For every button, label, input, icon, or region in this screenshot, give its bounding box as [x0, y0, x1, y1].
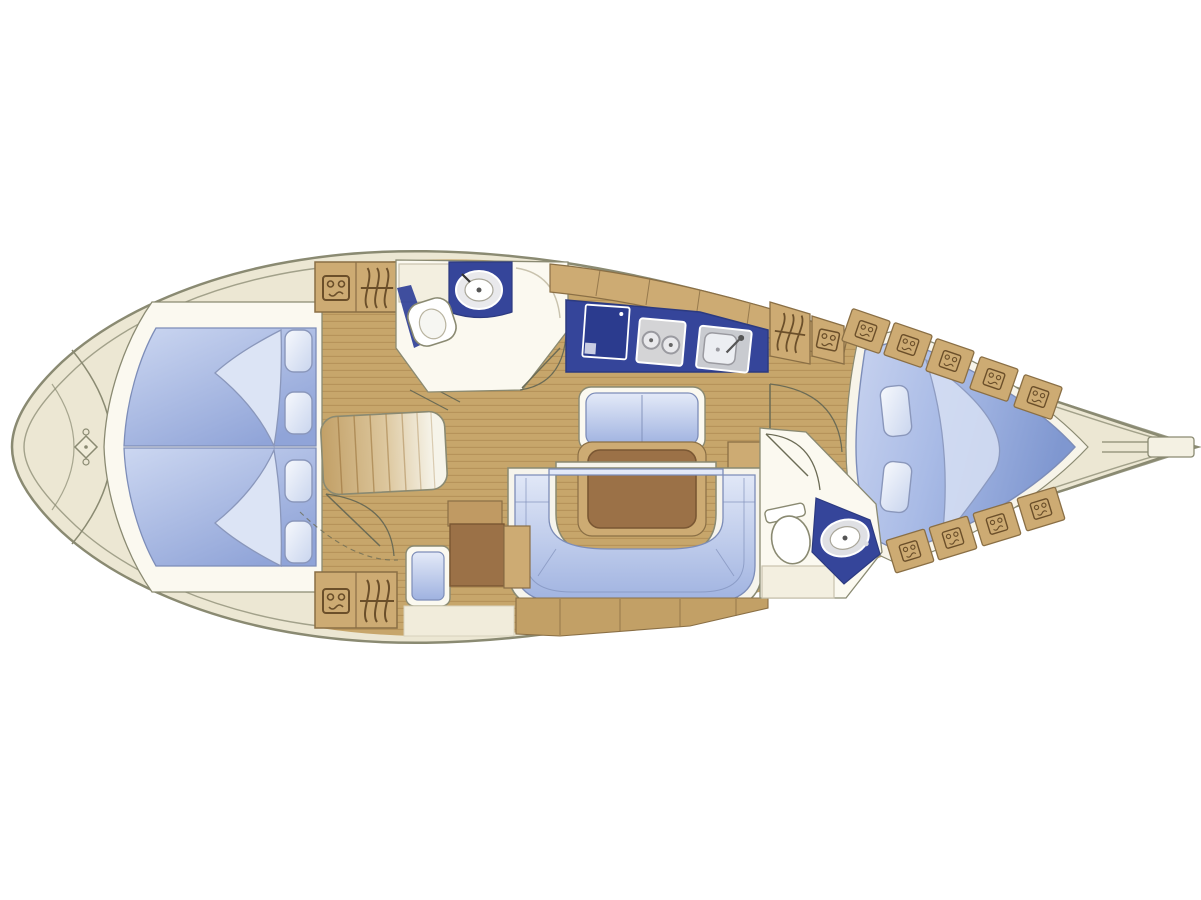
pillow — [285, 460, 312, 502]
yacht-floor-plan — [0, 0, 1201, 900]
stem-fitting — [1148, 437, 1194, 457]
chart-table-side — [504, 526, 530, 588]
nav-floor-strip — [404, 606, 514, 636]
chart-table-shelf — [448, 501, 502, 526]
companionway-lockers-port — [315, 262, 397, 312]
galley-sink — [696, 326, 752, 373]
pillow — [285, 521, 312, 563]
pillow — [285, 330, 312, 372]
salon-bottom-lockers — [516, 598, 768, 636]
v-berth-pillow — [879, 385, 912, 438]
salon-table — [578, 442, 706, 536]
aft-cabin — [104, 302, 322, 592]
galley-hanging-locker — [770, 302, 844, 364]
companionway-lockers-starboard — [315, 572, 397, 628]
v-berth-pillow — [879, 461, 912, 514]
aft-head-sink — [456, 271, 502, 309]
forward-head-counter — [762, 566, 834, 598]
galley-stove — [636, 318, 686, 366]
pillow — [285, 392, 312, 434]
galley-fridge — [582, 305, 630, 360]
chart-table — [450, 524, 504, 586]
companionway-steps — [320, 411, 448, 495]
